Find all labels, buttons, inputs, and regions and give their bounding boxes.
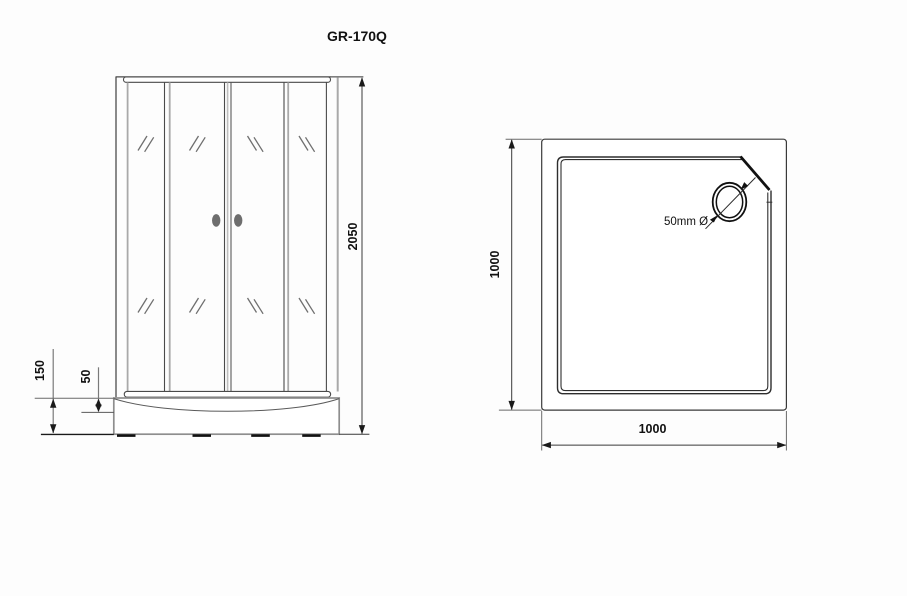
svg-text:1000: 1000 xyxy=(639,422,667,436)
svg-text:GR-170Q: GR-170Q xyxy=(327,28,387,44)
svg-text:50mm Ø: 50mm Ø xyxy=(664,216,708,228)
svg-text:150: 150 xyxy=(33,360,47,381)
svg-text:50: 50 xyxy=(79,370,93,384)
svg-text:2050: 2050 xyxy=(346,223,360,251)
svg-text:1000: 1000 xyxy=(488,251,502,279)
